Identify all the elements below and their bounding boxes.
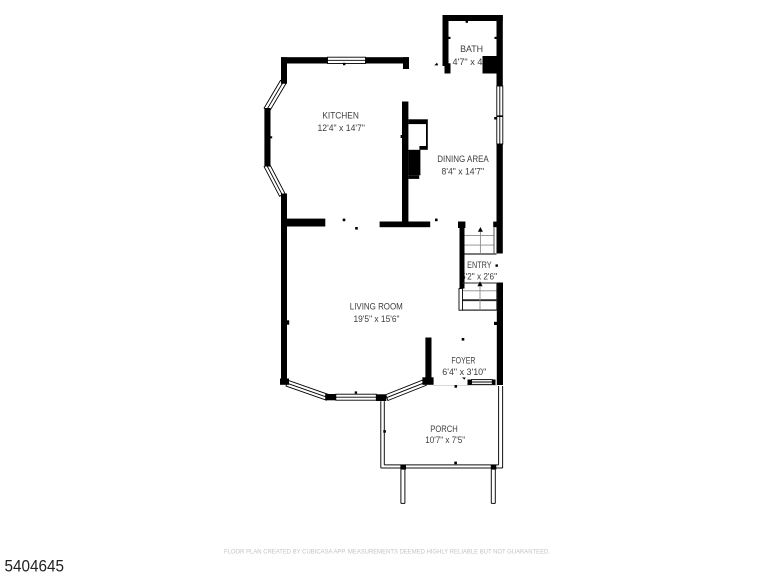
svg-text:5'2" x 2'6": 5'2" x 2'6" (461, 271, 497, 281)
svg-text:BATH: BATH (460, 44, 483, 54)
svg-text:10'7" x 7'5": 10'7" x 7'5" (425, 435, 465, 445)
svg-text:PORCH: PORCH (430, 424, 458, 434)
svg-text:FLOOR PLAN CREATED BY CUBICASA: FLOOR PLAN CREATED BY CUBICASA APP. MEAS… (224, 550, 550, 556)
svg-text:ENTRY: ENTRY (467, 260, 492, 270)
svg-text:12'4" x 14'7": 12'4" x 14'7" (317, 123, 365, 133)
svg-text:DINING AREA: DINING AREA (437, 154, 489, 164)
svg-text:8'4" x 14'7": 8'4" x 14'7" (442, 167, 485, 177)
svg-text:19'5" x 15'6": 19'5" x 15'6" (354, 314, 400, 324)
svg-text:FOYER: FOYER (451, 356, 475, 366)
svg-text:KITCHEN: KITCHEN (322, 111, 359, 121)
svg-text:6'4" x 3'10": 6'4" x 3'10" (442, 367, 486, 377)
svg-text:5404645: 5404645 (5, 558, 65, 576)
svg-text:LIVING ROOM: LIVING ROOM (350, 302, 403, 312)
